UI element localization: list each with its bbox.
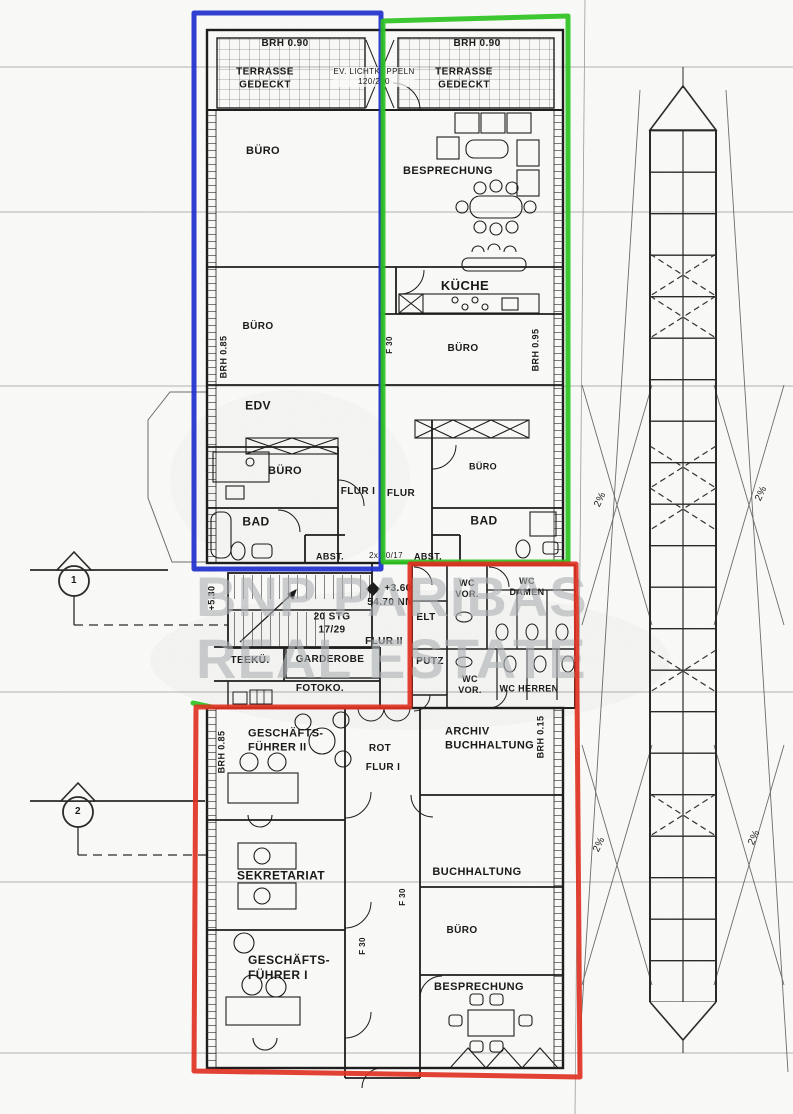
annotation-rect-blue (194, 13, 381, 569)
scanned-floor-plan: BNP PARIBAS REAL ESTATE BRH 0.90 BRH 0.9… (0, 0, 793, 1114)
annotation-layer (0, 0, 793, 1114)
annotation-outline-red (194, 564, 580, 1077)
annotation-rect-green (383, 16, 568, 562)
